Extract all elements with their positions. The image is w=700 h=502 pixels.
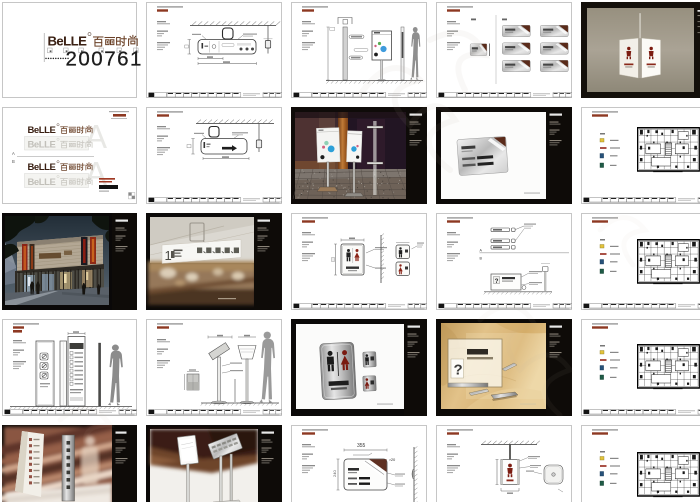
svg-text:A: A xyxy=(12,151,15,156)
svg-text:BeLLE: BeLLE xyxy=(28,162,56,173)
svg-text:200761: 200761 xyxy=(66,47,143,70)
svg-text:BeLLE: BeLLE xyxy=(28,140,56,151)
svg-text:r20: r20 xyxy=(390,457,397,462)
svg-text:BeLLE: BeLLE xyxy=(28,125,56,136)
svg-text:355: 355 xyxy=(357,443,366,449)
svg-text:240: 240 xyxy=(332,470,337,477)
svg-text:?: ? xyxy=(454,362,463,379)
svg-text:?: ? xyxy=(495,279,499,285)
svg-text:B: B xyxy=(12,159,15,164)
svg-text:1: 1 xyxy=(165,248,172,263)
svg-text:BeLLE: BeLLE xyxy=(28,177,56,188)
